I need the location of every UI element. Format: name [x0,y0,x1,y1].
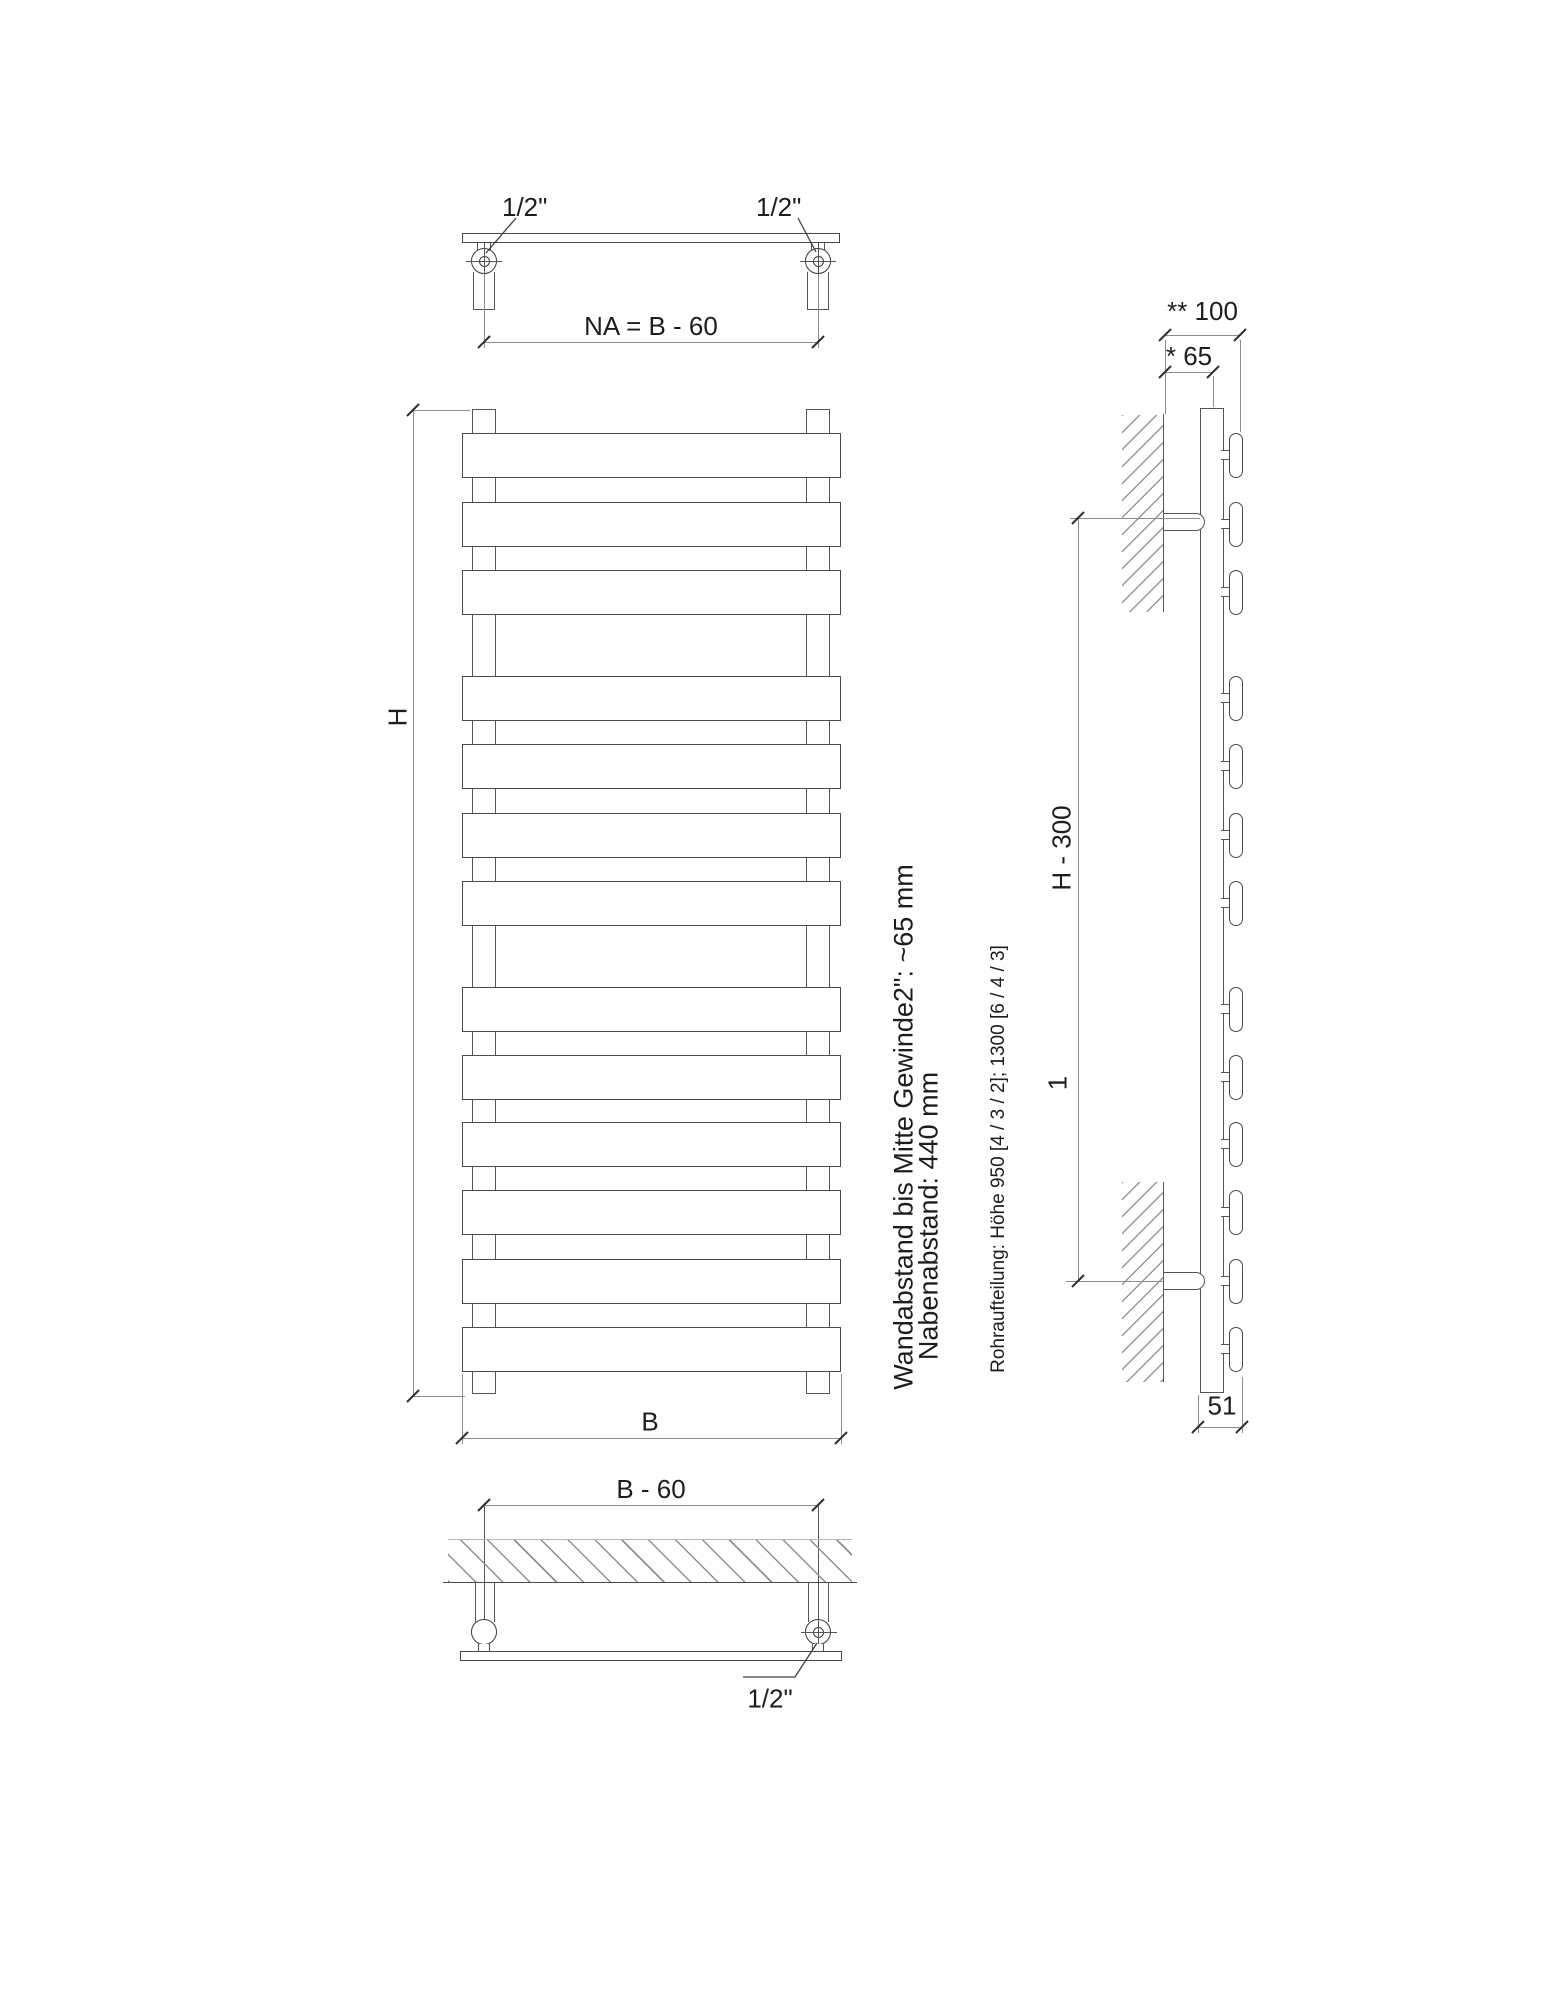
flat-bar-profile [1229,744,1243,789]
footnote-marker: 1 [1043,1076,1074,1090]
depth100-ext-right [1240,340,1241,432]
bottom-right-pipe-r [828,1582,829,1622]
depth100-dim-label: ** 100 [1160,296,1245,327]
side-wall-hatch-lower [1122,1182,1163,1382]
flat-bar [462,502,841,547]
flat-bar [462,1190,841,1235]
flat-bar [462,813,841,858]
flat-bar [462,1055,841,1100]
depth100-dim-line [1165,335,1240,336]
h300-dim-line [1078,518,1079,1281]
technical-drawing-towel-radiator: 1/2" 1/2" NA = B - 60 H B B - 60 [0,0,1556,2000]
flat-bar [462,987,841,1032]
bottom-left-valve-circle [471,1619,497,1645]
bottom-right-crosshair-h [801,1632,837,1633]
bottom-left-pipe-r [494,1582,495,1622]
note-tube-layout: Rohraufteilung: Höhe 950 [4 / 3 / 2]; 13… [988,945,1010,1373]
depth65-ext-line [1213,376,1214,407]
b-dim-line [462,1438,841,1439]
fitting-label-top-left: 1/2" [502,192,547,223]
top-view-plate [462,233,840,243]
bottom-wall-hatch [448,1539,852,1582]
flat-bar-profile [1229,570,1243,615]
na-ext-line-right [818,274,819,348]
h-ext-line-top [413,410,470,411]
depth65-dim-line [1165,372,1213,373]
side-wall-hatch-upper [1122,415,1163,612]
flat-bar-profile [1229,881,1243,926]
flat-bar [462,1327,841,1372]
fitting-label-top-right: 1/2" [756,192,801,223]
b-ext-line-left [462,1374,463,1444]
flat-bar [462,881,841,926]
h-dim-line [413,410,414,1396]
flat-bar-profile [1229,813,1243,858]
flat-bar [462,570,841,615]
flat-bar-profile [1229,987,1243,1032]
h300-dim-label: H - 300 [1047,805,1078,890]
depth51-dim-label: 51 [1208,1391,1237,1422]
depth51-dim-line [1198,1427,1242,1428]
h300-ext-line-bottom [1066,1281,1163,1282]
h-dim-label: H [383,708,414,727]
na-dim-label: NA = B - 60 [484,311,818,342]
bottom-right-pipe-l [808,1582,809,1622]
b-dim-label: B [641,1407,658,1438]
top-view-left-crosshair [466,261,502,262]
flat-bar [462,1259,841,1304]
b-ext-line-right [841,1374,842,1444]
bottom-wall-face-line [443,1582,857,1583]
b60-dim-label: B - 60 [484,1474,818,1505]
b60-dim-line [484,1505,818,1506]
flat-bar [462,744,841,789]
side-wall-bracket-top [1163,513,1205,531]
flat-bar-profile [1229,433,1243,478]
h300-ext-line-top [1070,518,1200,519]
flat-bar [462,1122,841,1167]
note-hub-distance: Nabenabstand: 440 mm [914,1072,945,1360]
bottom-view-plate [460,1651,842,1661]
top-view-right-crosshair [800,261,836,262]
bottom-left-pipe-l [475,1582,476,1622]
flat-bar-profile [1229,1055,1243,1100]
na-dim-line [483,342,818,343]
flat-bar-profile [1229,1327,1243,1372]
fitting-label-bottom: 1/2" [747,1684,792,1715]
flat-bar-profile [1229,1190,1243,1235]
flat-bar-profile [1229,502,1243,547]
depth65-dim-label: * 65 [1165,341,1213,372]
flat-bar-profile [1229,676,1243,721]
flat-bar [462,433,841,478]
side-wall-bracket-bottom [1163,1272,1205,1290]
flat-bar-profile [1229,1122,1243,1167]
flat-bar-profile [1229,1259,1243,1304]
flat-bar [462,676,841,721]
h-ext-line-bottom [413,1396,465,1397]
